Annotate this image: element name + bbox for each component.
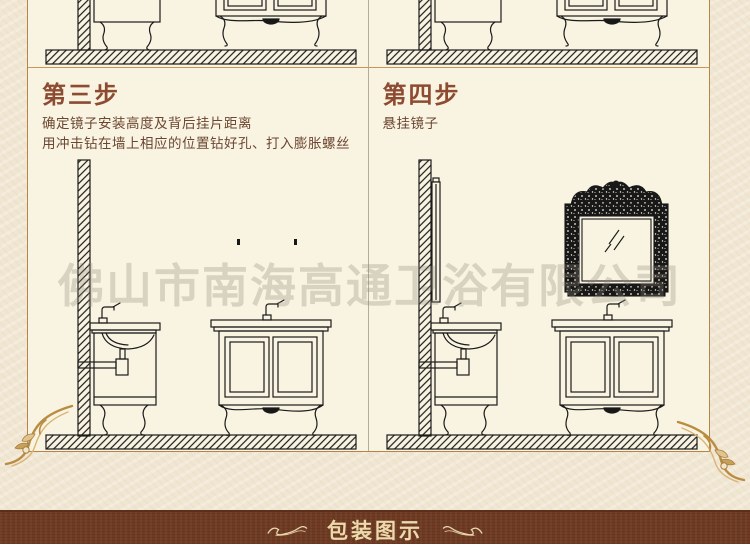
step4-title: 第四步 xyxy=(383,82,461,108)
step3-desc-line2: 用冲击钻在墙上相应的位置钻好孔、打入膨胀螺丝 xyxy=(42,135,350,155)
instruction-sheet: 第三步 确定镜子安装高度及背后挂片距离 用冲击钻在墙上相应的位置钻好孔、打入膨胀… xyxy=(0,0,750,544)
packaging-banner: 包装图示 xyxy=(0,510,750,544)
mirror-side-view xyxy=(432,178,440,302)
content-frame: 第三步 确定镜子安装高度及背后挂片距离 用冲击钻在墙上相应的位置钻好孔、打入膨胀… xyxy=(27,0,710,452)
gold-flourish-bottom-left-icon xyxy=(2,398,82,478)
step4-text: 第四步 悬挂镜子 xyxy=(383,82,461,135)
step3-title: 第三步 xyxy=(42,82,350,108)
packaging-banner-label: 包装图示 xyxy=(327,511,423,545)
wall-floor-vanities-drawing xyxy=(46,160,356,449)
prev-step-left-partial xyxy=(28,0,369,68)
prev-step-left-diagram xyxy=(28,0,369,68)
ornate-mirror-front-view xyxy=(565,181,668,296)
swirl-left-icon xyxy=(257,518,317,538)
swirl-right-icon xyxy=(433,518,493,538)
step3-panel: 第三步 确定镜子安装高度及背后挂片距离 用冲击钻在墙上相应的位置钻好孔、打入膨胀… xyxy=(28,68,369,451)
prev-step-right-partial xyxy=(369,0,710,68)
gold-flourish-bottom-right-icon xyxy=(668,414,748,494)
step3-text: 第三步 确定镜子安装高度及背后挂片距离 用冲击钻在墙上相应的位置钻好孔、打入膨胀… xyxy=(42,82,350,155)
step4-description: 悬挂镜子 xyxy=(383,115,461,135)
step4-panel: 第四步 悬挂镜子 xyxy=(369,68,710,451)
step4-desc-line1: 悬挂镜子 xyxy=(383,115,461,135)
step3-desc-line1: 确定镜子安装高度及背后挂片距离 xyxy=(42,115,350,135)
step3-description: 确定镜子安装高度及背后挂片距离 用冲击钻在墙上相应的位置钻好孔、打入膨胀螺丝 xyxy=(42,115,350,154)
prev-step-right-diagram xyxy=(369,0,710,68)
anchor-screws xyxy=(237,239,297,245)
